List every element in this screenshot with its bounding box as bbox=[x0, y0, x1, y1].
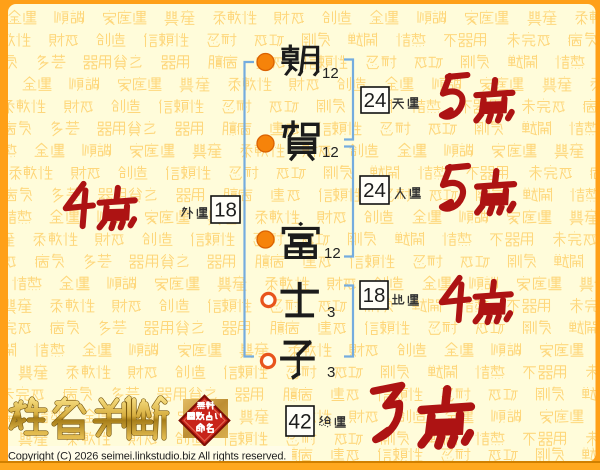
svg-text:24: 24 bbox=[364, 89, 387, 112]
svg-text:12: 12 bbox=[322, 65, 339, 82]
svg-text:42: 42 bbox=[288, 410, 311, 433]
svg-text:12: 12 bbox=[324, 245, 341, 262]
svg-text:18: 18 bbox=[363, 284, 386, 307]
svg-text:12: 12 bbox=[322, 144, 339, 161]
svg-text:18: 18 bbox=[214, 199, 237, 222]
svg-text:Copyright (C) 2026 seimei.link: Copyright (C) 2026 seimei.linkstudio.biz… bbox=[8, 451, 286, 463]
svg-text:3: 3 bbox=[327, 304, 335, 321]
svg-text:3: 3 bbox=[327, 364, 335, 381]
svg-text:24: 24 bbox=[363, 179, 386, 202]
